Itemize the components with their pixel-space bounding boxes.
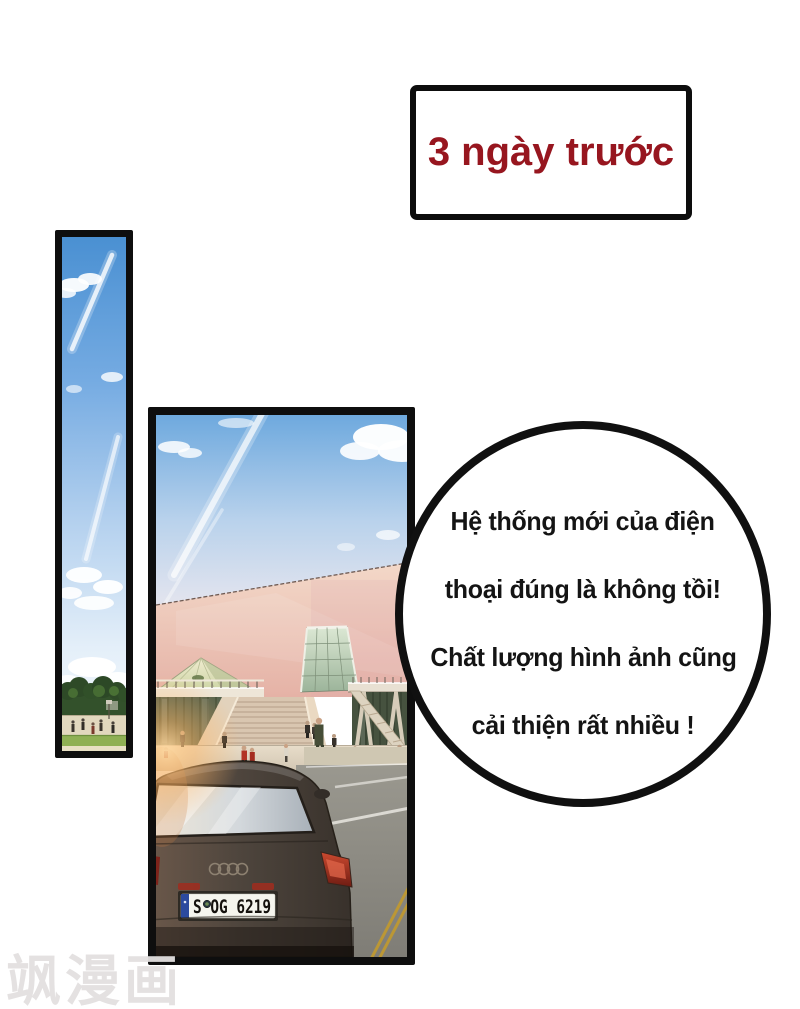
bubble-line: cải thiện rất nhiều ! — [472, 691, 695, 759]
sky-panel — [55, 230, 133, 758]
time-caption-text: 3 ngày trước — [428, 130, 674, 175]
bubble-line: Chất lượng hình ảnh cũng — [430, 623, 736, 691]
bubble-line: Hệ thống mới của điện — [451, 487, 715, 555]
grass-strip — [62, 735, 126, 751]
speech-bubble: Hệ thống mới của điện thoại đúng là khôn… — [395, 421, 771, 807]
side-mirror — [314, 789, 330, 799]
reflector — [178, 883, 200, 890]
building-panel-art: S OG 6219 — [156, 415, 407, 957]
reflector — [252, 883, 274, 890]
tree-line — [62, 676, 126, 719]
building-panel: S OG 6219 — [148, 407, 415, 965]
watermark-text: 飒漫画 — [6, 936, 183, 1009]
bubble-line: thoại đúng là không tồi! — [445, 555, 721, 623]
eu-band — [181, 894, 189, 918]
sky-panel-art — [62, 237, 126, 751]
time-caption-box: 3 ngày trước — [410, 85, 692, 220]
comic-page: 3 ngày trước — [0, 0, 800, 1009]
